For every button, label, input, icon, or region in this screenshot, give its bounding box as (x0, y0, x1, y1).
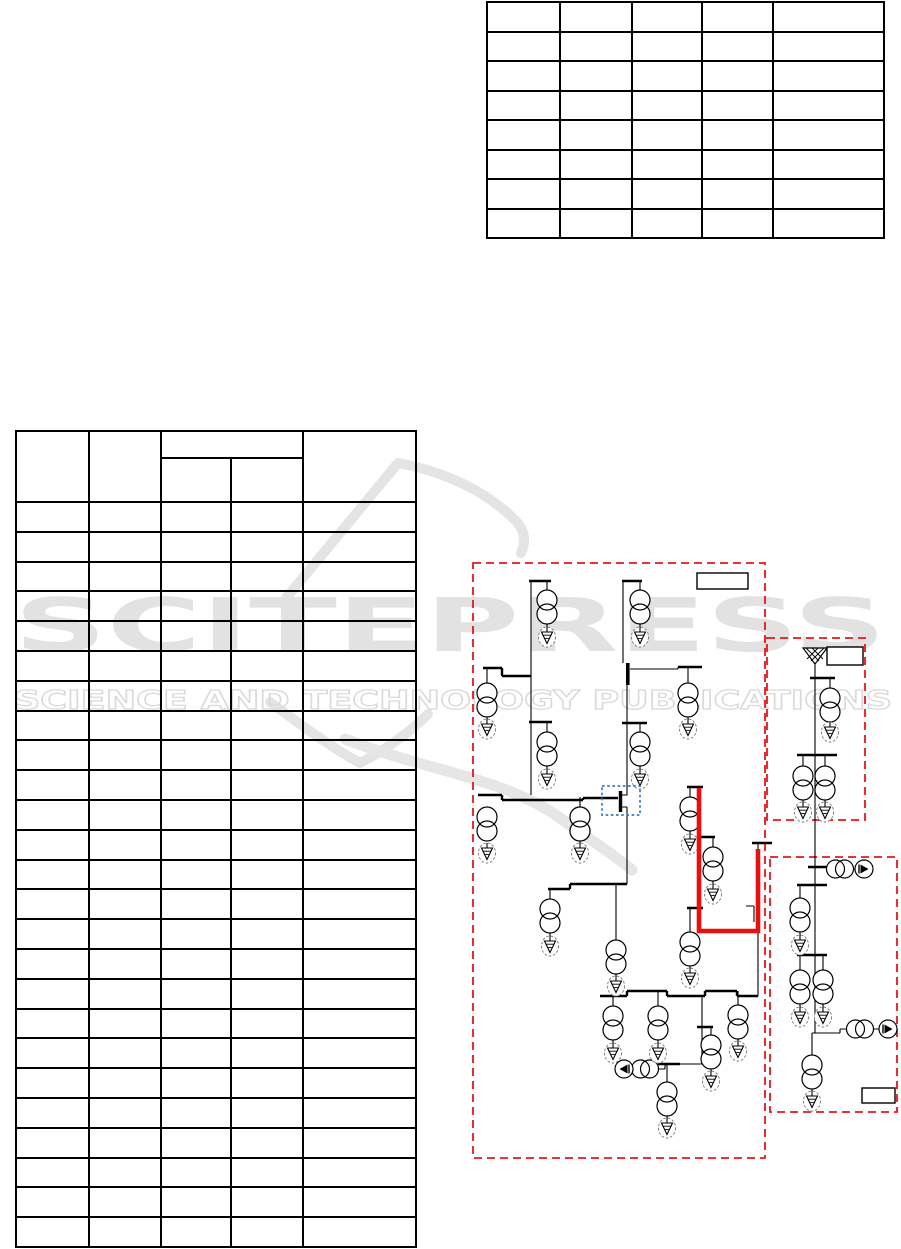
machine-icon-motor-2 (879, 1020, 897, 1038)
zone-lower-right (770, 857, 897, 1112)
paper-page: SCITEPRESS SCIENCE AND TECHNOLOGY PUBLIC… (0, 0, 901, 1249)
transformer-icon (570, 807, 590, 841)
machine-icon-motor-1 (855, 860, 873, 878)
machine-icon-generator (615, 1060, 633, 1078)
label-box-lower-right-zone (862, 1088, 895, 1103)
external-grid-icon (803, 648, 827, 664)
label-box-main-zone (697, 573, 748, 589)
single-line-diagram-figure (0, 0, 901, 1249)
load-icons (479, 627, 839, 1138)
thick-busbar (626, 663, 630, 685)
label-box-upper-right-zone (827, 647, 863, 665)
thick-busbar-selected (619, 791, 622, 812)
